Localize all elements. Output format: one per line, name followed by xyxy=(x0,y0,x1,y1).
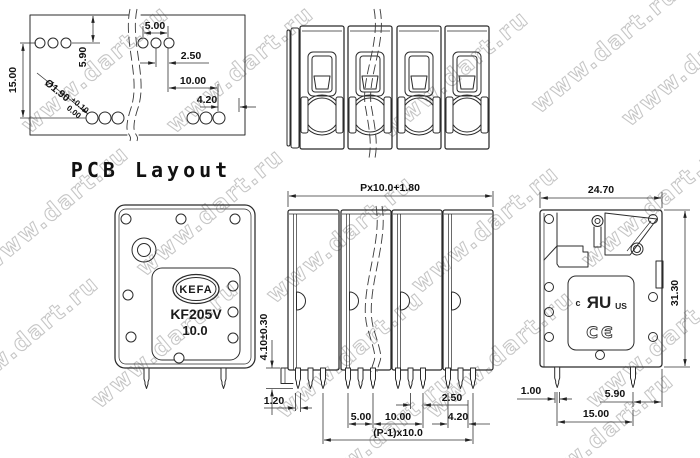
technical-drawing-page: www.dart.ru www.dart.ru www.dart.ru www.… xyxy=(0,0,700,458)
dim-p-1-x10: (P-1)x10.0 xyxy=(373,427,423,439)
solder-pin xyxy=(555,367,560,388)
dim-px10: Px10.0+1.80 xyxy=(360,182,420,194)
end-wall-strip xyxy=(287,30,290,146)
watermark-text: www.dart.ru xyxy=(0,271,104,409)
terminal-pole xyxy=(300,26,344,149)
mount-boss xyxy=(631,243,643,255)
latch-notch xyxy=(297,292,306,310)
dim-24-70: 24.70 xyxy=(588,184,614,196)
solder-pins xyxy=(296,368,476,389)
ul-mark-logo: ЯU xyxy=(587,293,612,312)
dim-1-20: 1.20 xyxy=(264,395,285,407)
dim-5-90: 5.90 xyxy=(77,47,89,68)
ul-recognized-mark: c ЯU US xyxy=(575,293,627,312)
drawing-canvas: www.dart.ru www.dart.ru www.dart.ru www.… xyxy=(0,0,700,458)
model-number: KF205V xyxy=(170,306,222,322)
end-wall xyxy=(291,28,299,148)
latch-notch xyxy=(350,292,359,310)
dim-pin-width: 1.00 xyxy=(517,385,572,403)
dim-2-50: 2.50 xyxy=(442,392,463,404)
screw-head xyxy=(592,216,603,227)
dim-4-20: 4.20 xyxy=(448,411,469,423)
ul-mark-c: c xyxy=(575,298,580,308)
certification-panel: c ЯU US CЄ xyxy=(568,276,634,350)
pitch-label: 10.0 xyxy=(182,323,207,338)
dim-5-00: 5.00 xyxy=(145,20,166,32)
dim-4-20: 4.20 xyxy=(197,94,218,106)
brand-name: KEFA xyxy=(179,284,212,296)
watermark-text: www.dart.ru xyxy=(577,136,700,274)
terminal-pole xyxy=(348,26,392,149)
dim-15-00: 15.00 xyxy=(583,408,609,420)
watermark-text: www.dart.ru xyxy=(162,1,320,139)
kefa-logo: KEFA xyxy=(173,275,219,304)
ul-mark-us: US xyxy=(615,301,627,311)
screw-hole xyxy=(174,353,184,363)
latch-notch xyxy=(452,292,461,310)
dim-31-30: 31.30 xyxy=(669,280,681,306)
ce-mark: CЄ xyxy=(586,323,615,342)
watermark-text: www.dart.ru xyxy=(407,161,565,299)
dim-5-00: 5.00 xyxy=(351,411,372,423)
dim-2-50: 2.50 xyxy=(181,50,202,62)
pcb-layout-title: PCB Layout xyxy=(71,158,231,182)
dim-10-00: 10.00 xyxy=(385,411,411,423)
watermark-text: www.dart.ru xyxy=(87,276,245,414)
dim-5-90: 5.90 xyxy=(605,388,626,400)
solder-pin xyxy=(221,368,226,389)
watermark-layer: www.dart.ru www.dart.ru www.dart.ru www.… xyxy=(0,0,700,458)
dim-10-00: 10.00 xyxy=(180,75,206,87)
dim-4-10: 4.10±0.30 xyxy=(258,314,270,361)
dim-1-00: 1.00 xyxy=(521,385,542,397)
dim-15-00: 15.00 xyxy=(7,67,19,93)
solder-pin xyxy=(144,368,149,389)
